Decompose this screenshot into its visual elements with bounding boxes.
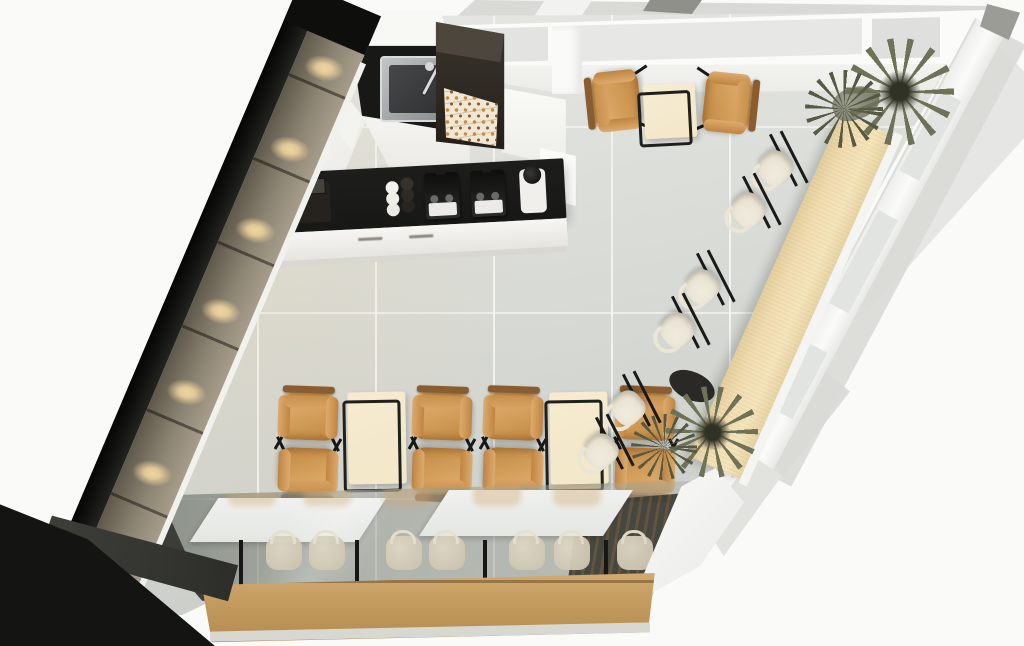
wall-downlight-glow [260, 127, 319, 171]
wall-pillar [552, 26, 582, 94]
counter-marking [409, 234, 433, 238]
terrace-chair [509, 536, 545, 570]
palm-leaves [805, 70, 883, 148]
dining-armchair [480, 385, 546, 445]
machine-tray [475, 200, 504, 214]
wall-downlight-glow [294, 46, 353, 90]
terrace-chair [617, 536, 653, 570]
palm-leaves [631, 414, 697, 480]
window-glass [566, 18, 862, 62]
machine-tray [428, 202, 457, 216]
faucet [425, 62, 434, 71]
armchair-back-cushion [284, 393, 332, 409]
cup-stack-dark [400, 177, 414, 191]
display-fridge [434, 20, 512, 152]
wall-downlight-glow [157, 370, 216, 414]
counter-marking [359, 237, 383, 241]
espresso-machine [424, 172, 460, 220]
terrace-chair [266, 536, 302, 570]
lounge-square-table [643, 83, 698, 140]
terrace-chair [554, 536, 590, 570]
terrace-chair [309, 536, 345, 570]
dining-table [347, 392, 407, 485]
terrace-chair [386, 536, 422, 570]
coffee-grinder [519, 168, 547, 213]
lounge-armchair [697, 68, 761, 138]
dining-armchair [275, 385, 341, 445]
armchair-back-cushion [489, 393, 537, 409]
wall-downlight-glow [226, 208, 285, 252]
espresso-machine [470, 169, 506, 217]
render-stage [0, 0, 1024, 646]
wall-downlight-glow [191, 289, 250, 333]
cup-stack-white [386, 181, 400, 195]
palm-core [878, 70, 921, 113]
terrace-chair [429, 536, 465, 570]
wall-downlight-glow [123, 451, 182, 495]
dining-armchair [409, 385, 475, 445]
palm-core [694, 414, 731, 451]
armchair-back-cushion [418, 393, 466, 409]
